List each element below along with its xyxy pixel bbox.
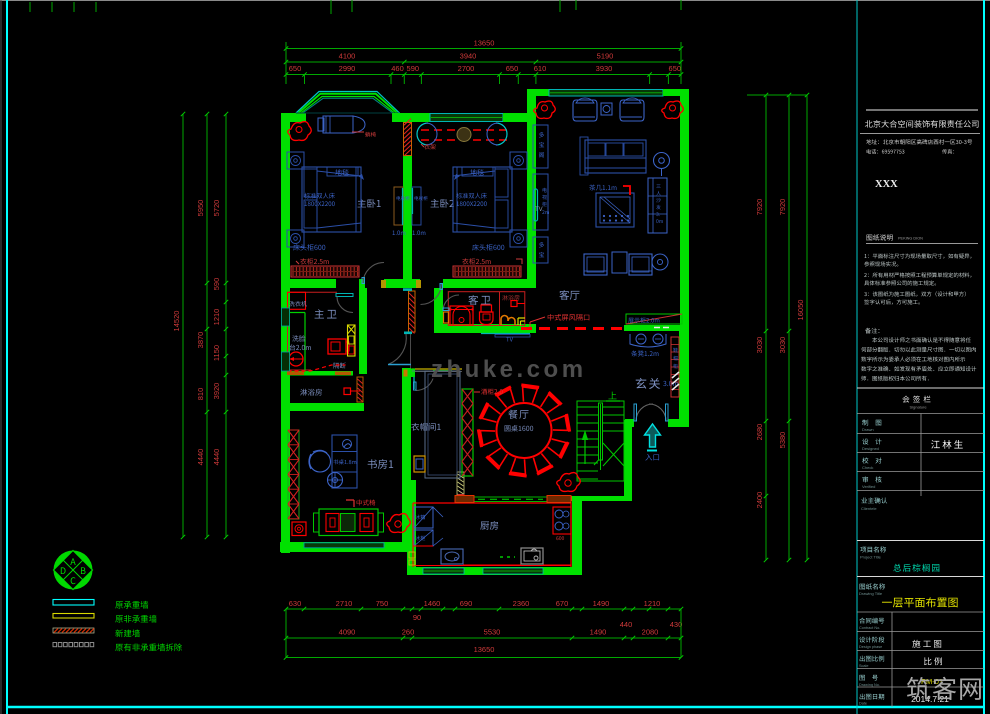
- svg-text:2700: 2700: [458, 64, 475, 73]
- svg-text:650: 650: [289, 64, 302, 73]
- svg-text:2080: 2080: [642, 628, 659, 637]
- svg-text:1490: 1490: [590, 628, 607, 637]
- svg-text:Clientele: Clientele: [861, 506, 877, 511]
- svg-text:zhuke.com: zhuke.com: [431, 356, 587, 383]
- svg-text:690: 690: [460, 599, 473, 608]
- svg-text:4090: 4090: [339, 628, 356, 637]
- svg-text:590: 590: [212, 278, 221, 291]
- svg-text:2360: 2360: [513, 599, 530, 608]
- svg-text:440: 440: [620, 620, 633, 629]
- svg-text:TV: TV: [535, 207, 543, 213]
- svg-text:2710: 2710: [336, 599, 353, 608]
- svg-text:Drawn: Drawn: [862, 427, 874, 432]
- svg-text:13650: 13650: [474, 645, 495, 654]
- svg-text:4100: 4100: [339, 52, 356, 61]
- svg-text:16050: 16050: [796, 300, 805, 321]
- svg-text:650: 650: [506, 64, 519, 73]
- svg-text:Designed: Designed: [862, 446, 879, 451]
- svg-text:590: 590: [407, 64, 420, 73]
- svg-text:XXX: XXX: [875, 179, 898, 190]
- svg-text:5530: 5530: [484, 628, 501, 637]
- svg-text:13650: 13650: [474, 39, 495, 48]
- svg-text:810: 810: [196, 388, 205, 401]
- svg-text:3920: 3920: [212, 383, 221, 400]
- svg-text:7920: 7920: [755, 199, 764, 216]
- svg-text:3870: 3870: [196, 332, 205, 349]
- svg-text:Verified: Verified: [862, 484, 875, 489]
- svg-text:5190: 5190: [597, 52, 614, 61]
- svg-text:3930: 3930: [596, 64, 613, 73]
- svg-text:1150: 1150: [212, 345, 221, 361]
- svg-text:Project Title: Project Title: [860, 555, 882, 560]
- svg-text:610: 610: [534, 64, 547, 73]
- svg-text:2680: 2680: [755, 424, 764, 441]
- svg-text:90: 90: [413, 613, 421, 622]
- svg-text:3030: 3030: [778, 337, 787, 354]
- svg-text:3940: 3940: [460, 52, 477, 61]
- svg-text:Contract No.: Contract No.: [859, 626, 880, 630]
- svg-text:1210: 1210: [212, 309, 221, 326]
- svg-text:2990: 2990: [339, 64, 356, 73]
- svg-text:2400: 2400: [755, 492, 764, 509]
- svg-text:Drawing Title: Drawing Title: [859, 591, 883, 596]
- svg-text:5950: 5950: [196, 200, 205, 217]
- svg-text:4440: 4440: [196, 449, 205, 466]
- svg-text:Design phase: Design phase: [859, 645, 882, 649]
- svg-text:260: 260: [402, 628, 415, 637]
- svg-text:750: 750: [376, 599, 389, 608]
- svg-text:7920: 7920: [778, 199, 787, 216]
- svg-text:Date: Date: [859, 702, 867, 706]
- svg-text:PEKING DION: PEKING DION: [898, 237, 923, 241]
- svg-text:1210: 1210: [644, 599, 661, 608]
- svg-text:5720: 5720: [212, 200, 221, 217]
- svg-text:Signature: Signature: [909, 405, 927, 410]
- svg-text:Scale: Scale: [859, 664, 869, 668]
- svg-text:650: 650: [669, 64, 682, 73]
- svg-text:Check: Check: [862, 465, 873, 470]
- svg-text:1460: 1460: [424, 599, 441, 608]
- svg-text:Drawing No.: Drawing No.: [859, 683, 880, 687]
- svg-text:670: 670: [556, 599, 569, 608]
- svg-text:5380: 5380: [778, 432, 787, 449]
- svg-text:630: 630: [289, 599, 302, 608]
- svg-text:14520: 14520: [172, 311, 181, 332]
- svg-text:1490: 1490: [593, 599, 610, 608]
- svg-text:430: 430: [670, 620, 683, 629]
- svg-text:3030: 3030: [755, 337, 764, 354]
- svg-text:460: 460: [391, 64, 404, 73]
- svg-text:4440: 4440: [212, 449, 221, 466]
